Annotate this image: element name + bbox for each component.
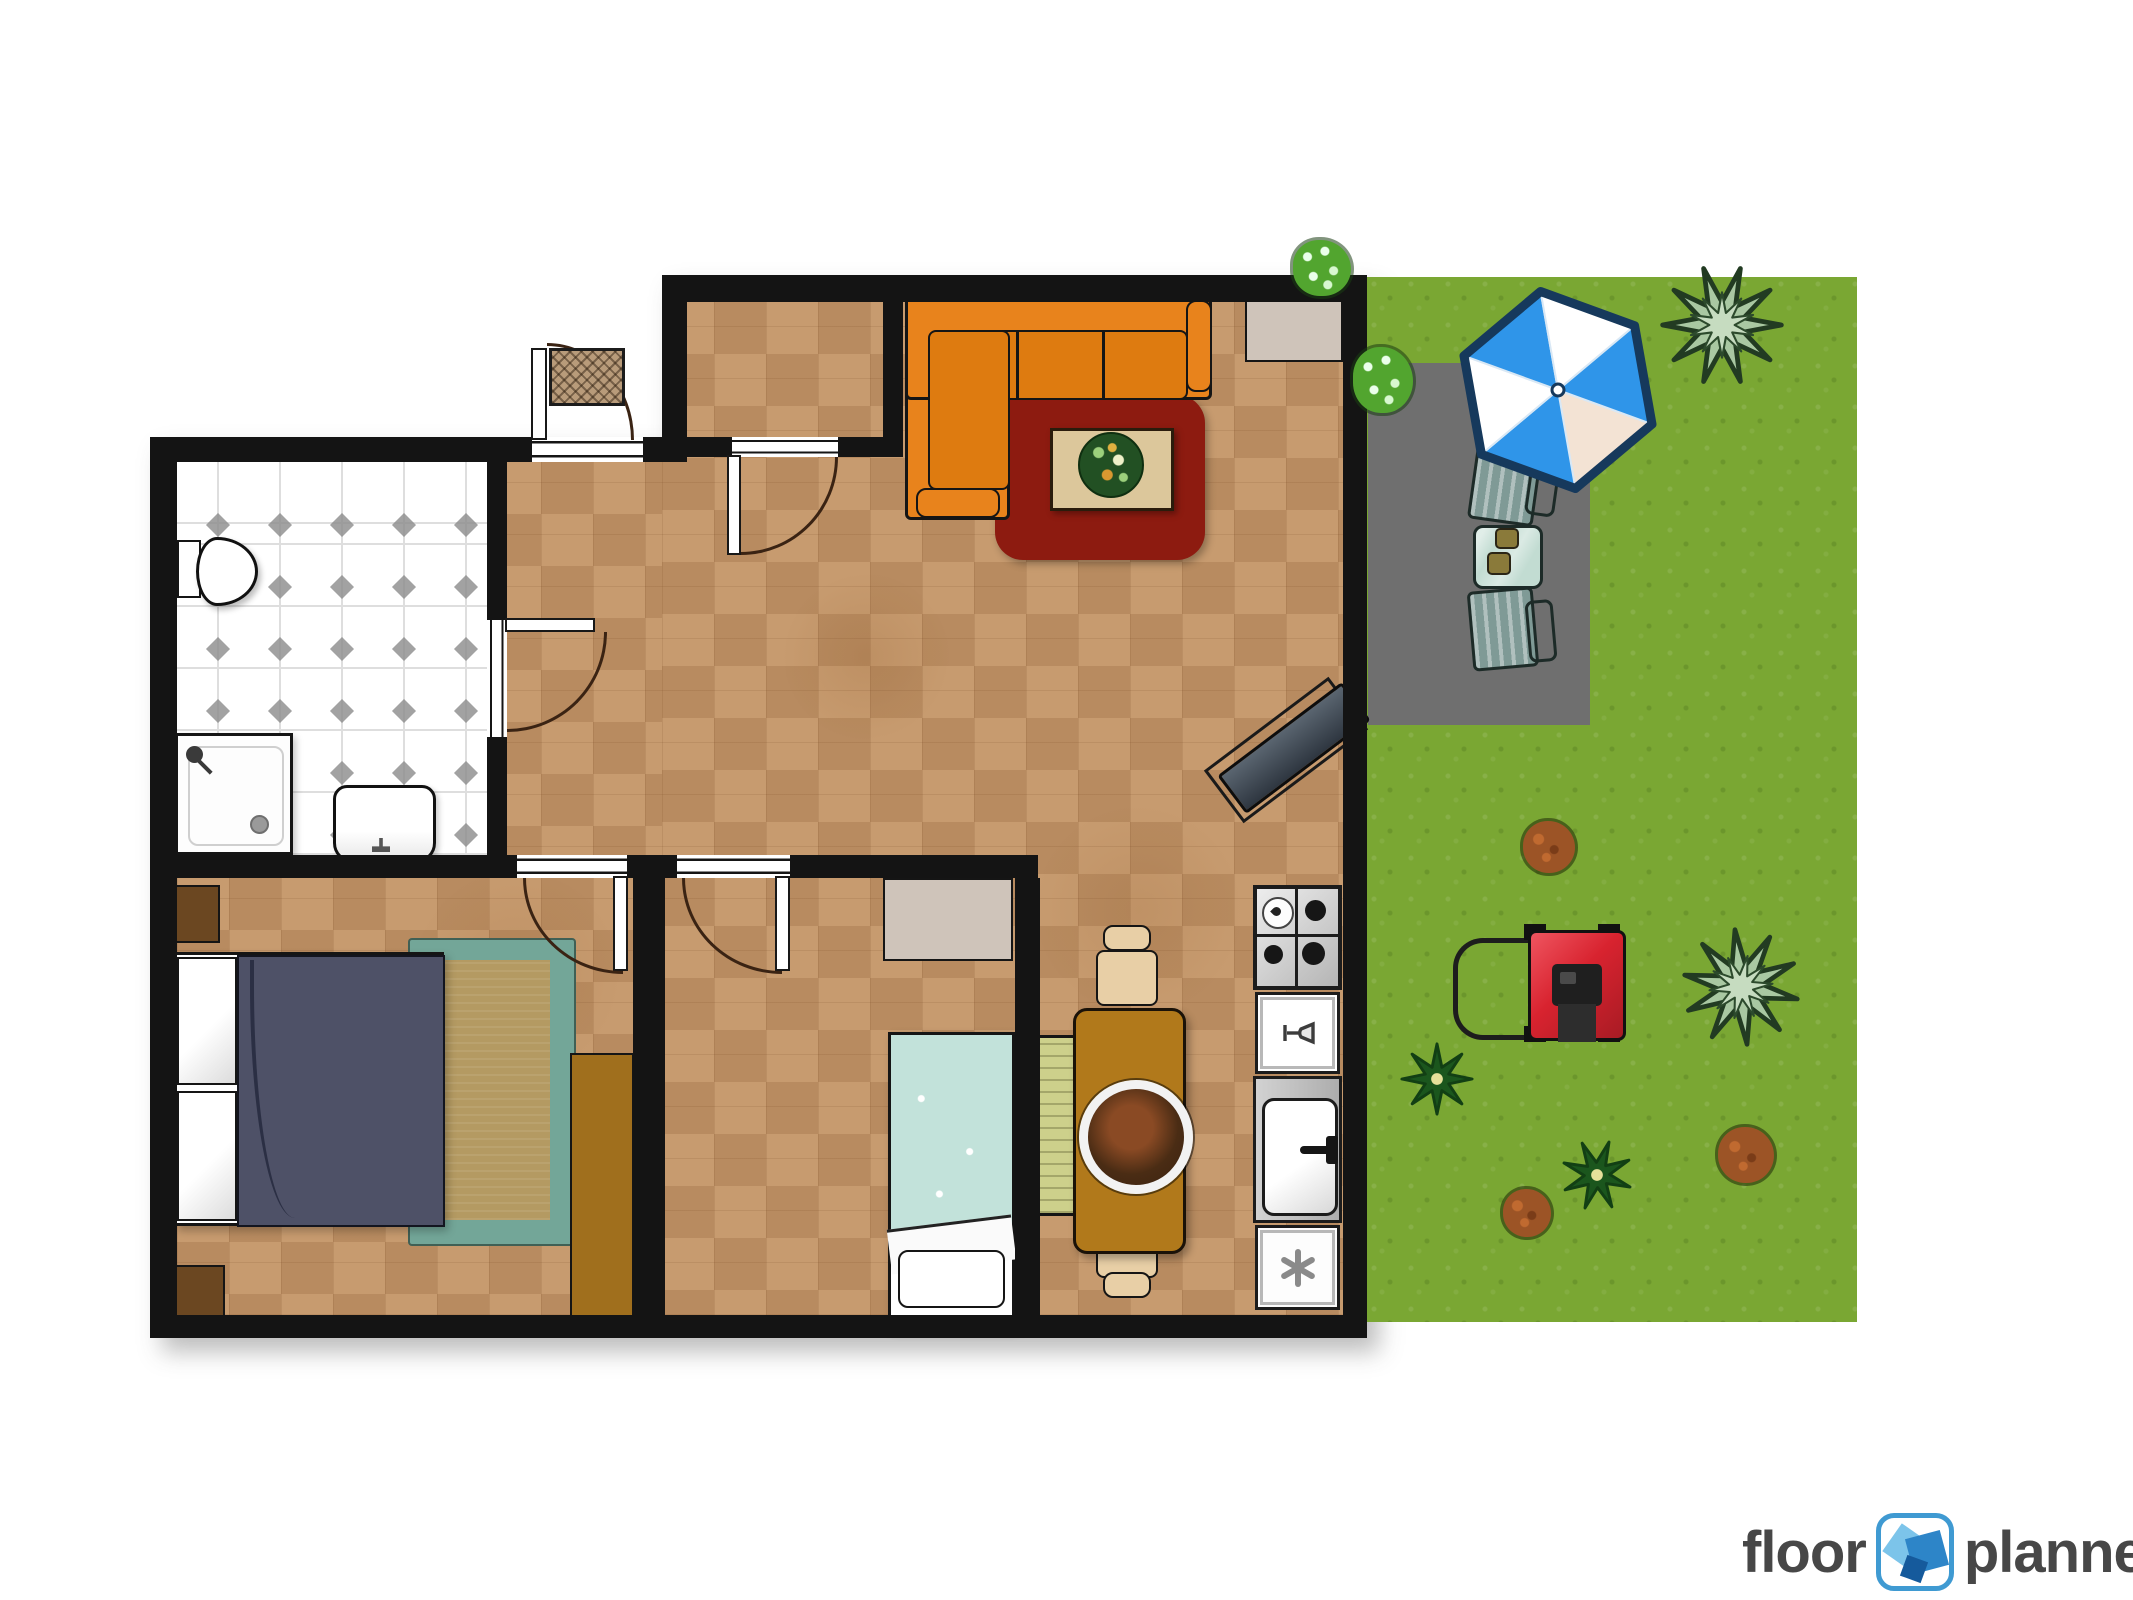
tile-diamond: [330, 699, 354, 723]
single-bed-pillow: [898, 1250, 1005, 1308]
closet-wall-bottom-b: [838, 437, 903, 457]
tile-diamond: [330, 575, 354, 599]
floorplanner-logo-icon: [1876, 1513, 1954, 1591]
kitchen-faucet-base: [1326, 1136, 1338, 1164]
agave-plant-icon: [1655, 258, 1789, 392]
tile-diamond: [454, 575, 478, 599]
sofa-seam: [1102, 330, 1105, 400]
watermark-logo: floor planner: [1742, 1508, 2133, 1596]
dining-chair-seat: [1096, 950, 1158, 1006]
sofa-armrest: [916, 488, 1000, 518]
sofa-seam: [1016, 330, 1019, 400]
garden-plant-icon: [1398, 1040, 1476, 1118]
bedroom-rug-center: [430, 960, 550, 1220]
bedrooms-wall-top-a: [487, 855, 517, 878]
floorplan-scene: floor planner: [0, 0, 2133, 1600]
brown-bush: [1718, 1127, 1774, 1183]
tile-diamond: [330, 637, 354, 661]
closet-wall-right: [883, 302, 903, 457]
stove-grid-v: [1295, 888, 1298, 987]
bathroom-door-threshold: [487, 620, 507, 737]
stove-burner: [1305, 900, 1326, 921]
dining-chair-back: [1103, 925, 1151, 951]
wall-upper-left-b: [643, 437, 687, 462]
bedroom2-dining-wall: [1015, 878, 1040, 1315]
tile-diamond: [268, 575, 292, 599]
table-plant: [1078, 432, 1144, 498]
mower-engine-detail: [1560, 972, 1576, 984]
garden-plant-icon: [1558, 1136, 1636, 1214]
bathroom-door-leaf: [505, 618, 595, 632]
tile-diamond: [454, 699, 478, 723]
bed-pillow: [177, 1091, 237, 1221]
bedrooms-wall-top-b: [627, 855, 677, 878]
snowflake-icon: [1279, 1249, 1317, 1287]
bathroom-wall-bottom: [150, 855, 507, 878]
agave-plant-icon: [1676, 922, 1806, 1052]
patio-chair-arm: [1524, 599, 1557, 663]
wall-step: [662, 275, 687, 462]
tile-diamond: [206, 637, 230, 661]
sofa-chaise-cushion: [928, 330, 1010, 490]
shower-drain: [250, 815, 269, 834]
shrub-icon: [1353, 347, 1413, 413]
mower-chute: [1558, 1004, 1596, 1042]
tile-diamond: [268, 513, 292, 537]
wine-glass-icon: [1275, 1010, 1321, 1056]
lawn-mower-icon: [1448, 920, 1628, 1045]
sofa-armrest: [1186, 300, 1212, 392]
bathroom-wall-right-a: [487, 462, 507, 620]
stove-grid-h: [1256, 934, 1339, 937]
wall-top: [662, 275, 1367, 302]
tile-diamond: [268, 699, 292, 723]
shrub-icon: [1293, 240, 1351, 296]
tile-diamond: [392, 513, 416, 537]
patio-cup: [1495, 528, 1519, 549]
closet-wall-bottom-a: [687, 437, 732, 457]
patio-cup: [1487, 552, 1511, 575]
front-door-mat: [549, 348, 625, 406]
wardrobe: [570, 1053, 634, 1317]
wall-upper-left-a: [150, 437, 532, 462]
bedroom1-door-threshold: [517, 855, 627, 878]
brown-bush: [1503, 1189, 1551, 1237]
tile-diamond: [392, 699, 416, 723]
bed-pillow: [177, 957, 237, 1085]
bedrooms-wall-top-c: [790, 855, 1038, 878]
mower-engine: [1552, 964, 1602, 1006]
sideboard: [1245, 299, 1343, 362]
bedroom-divider-wall: [633, 878, 665, 1315]
tile-diamond: [454, 513, 478, 537]
tile-diamond: [268, 637, 292, 661]
closet-door-threshold: [732, 437, 838, 457]
tile-diamond: [206, 513, 230, 537]
single-bed-blanket: [891, 1035, 1012, 1247]
bedroom2-door-threshold: [677, 855, 790, 878]
tile-diamond: [206, 699, 230, 723]
dinner-platter: [1079, 1080, 1193, 1194]
tile-diamond: [392, 761, 416, 785]
front-door-threshold: [532, 437, 643, 462]
logo-word-floor: floor: [1742, 1519, 1866, 1586]
wall-right: [1343, 275, 1367, 1338]
tile-diamond: [454, 637, 478, 661]
tile-diamond: [330, 761, 354, 785]
brown-bush: [1523, 821, 1575, 873]
tile-diamond: [454, 823, 478, 847]
wall-left: [150, 437, 177, 1338]
dining-chair-back: [1103, 1272, 1151, 1298]
tile-diamond: [392, 637, 416, 661]
umbrella-icon: [1448, 280, 1668, 500]
stove-burner: [1264, 945, 1283, 964]
stove-burner: [1302, 942, 1325, 965]
tile-diamond: [392, 575, 416, 599]
dresser: [883, 878, 1013, 961]
tile-diamond: [454, 761, 478, 785]
wall-bottom: [150, 1315, 1367, 1338]
closet-door-leaf: [727, 455, 741, 555]
front-door-leaf: [531, 348, 547, 440]
tile-diamond: [330, 513, 354, 537]
logo-word-planner: planner: [1964, 1519, 2133, 1586]
